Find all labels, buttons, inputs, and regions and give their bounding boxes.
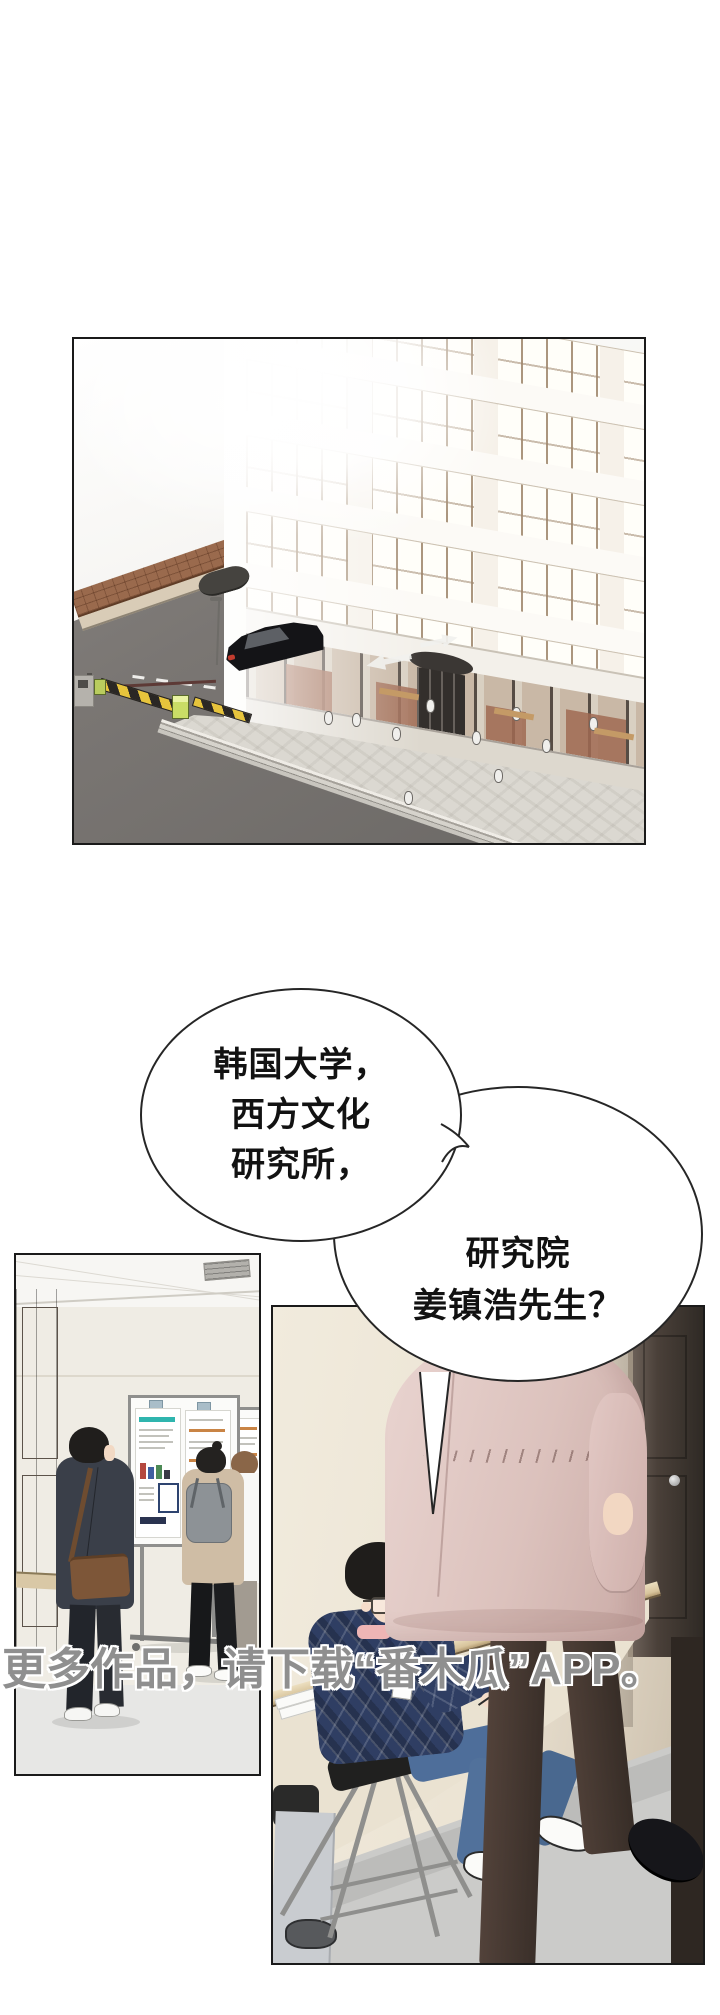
entrance-mat [286,664,332,712]
poster-navy-bar [140,1517,166,1524]
poster-heading [189,1429,225,1432]
office-building [224,337,646,797]
cabinet-door [22,1307,58,1459]
spandrel-band [246,487,646,586]
bollard [392,727,401,741]
poster-text-line [139,1487,154,1489]
window-row [246,337,646,411]
researcher-b-hair [196,1447,226,1473]
speech-bubble-left: 韩国大学， 西方文化 研究所， [140,988,462,1242]
parking-booth [74,675,94,707]
coat-hem-shadow [393,1609,643,1633]
bollard [472,731,481,745]
bollard [404,791,413,805]
speech-line: 西方文化 [231,1090,371,1140]
messenger-bag [70,1553,131,1600]
bollard [542,739,551,753]
poster-text-line [139,1447,165,1449]
floor [16,1685,259,1774]
poster-text-line [139,1429,173,1431]
board-leg [140,1541,144,1641]
watermark-text: 更多作品，请下载“番木瓜”APP。 [2,1633,718,1697]
poster-text-line [139,1441,173,1443]
speech-line: 研究院 [466,1228,571,1280]
bollard [324,711,333,725]
revolving-door-awning [409,648,473,679]
door-knob [669,1475,680,1486]
poster-text-line [239,1437,257,1439]
comic-page: 研究院 姜镇浩先生？ 韩国大学， 西方文化 研究所， 更多作品，请下载“番木瓜”… [0,0,720,2015]
poster-text-line [139,1435,169,1437]
window-row [246,435,646,563]
speech-line: 研究所， [231,1140,371,1190]
chart-bar-red [140,1463,146,1479]
poster-figure-box [158,1483,179,1513]
poster-sheet-chart [135,1408,181,1538]
revolving-door [417,667,465,735]
poster-text-line [239,1443,255,1445]
visitor-a-face [104,1445,115,1461]
bollard [426,699,435,713]
chart-bar-dark [164,1470,170,1479]
speech-line: 姜镇浩先生？ [413,1280,623,1332]
chart-bar-blue [148,1467,154,1479]
researcher-b-hairbun [212,1441,222,1451]
chart-bar-green [156,1465,162,1479]
glasses-arm [363,1600,373,1602]
street-lamp-head [210,597,222,601]
bollard [494,769,503,783]
speech-tail-down [414,1368,462,1520]
ticket-machine [172,695,189,719]
poster-text-line [139,1499,154,1501]
door-panel [643,1335,687,1459]
cabinet-door [22,1475,58,1627]
ticket-machine [94,679,106,695]
visitor-a-shoe [94,1703,120,1717]
spandrel-band [246,411,646,510]
poster-heading [239,1427,257,1430]
backpack-strap [216,1478,225,1508]
visitor-a-shoe [64,1707,92,1721]
researcher-b-backpack [186,1483,232,1543]
poster-teal-bar [139,1417,175,1422]
standing-visitor-hand [603,1493,633,1535]
panel-building-exterior [72,337,646,845]
speech-line: 韩国大学， [214,1040,389,1090]
bollard [352,713,361,727]
panel-hallway [14,1253,261,1776]
poster-text-line [189,1419,223,1421]
speech-tail-right [438,1120,474,1168]
poster-text-line [139,1493,154,1495]
visitor-a-hair [69,1427,109,1463]
window-row [246,359,646,487]
